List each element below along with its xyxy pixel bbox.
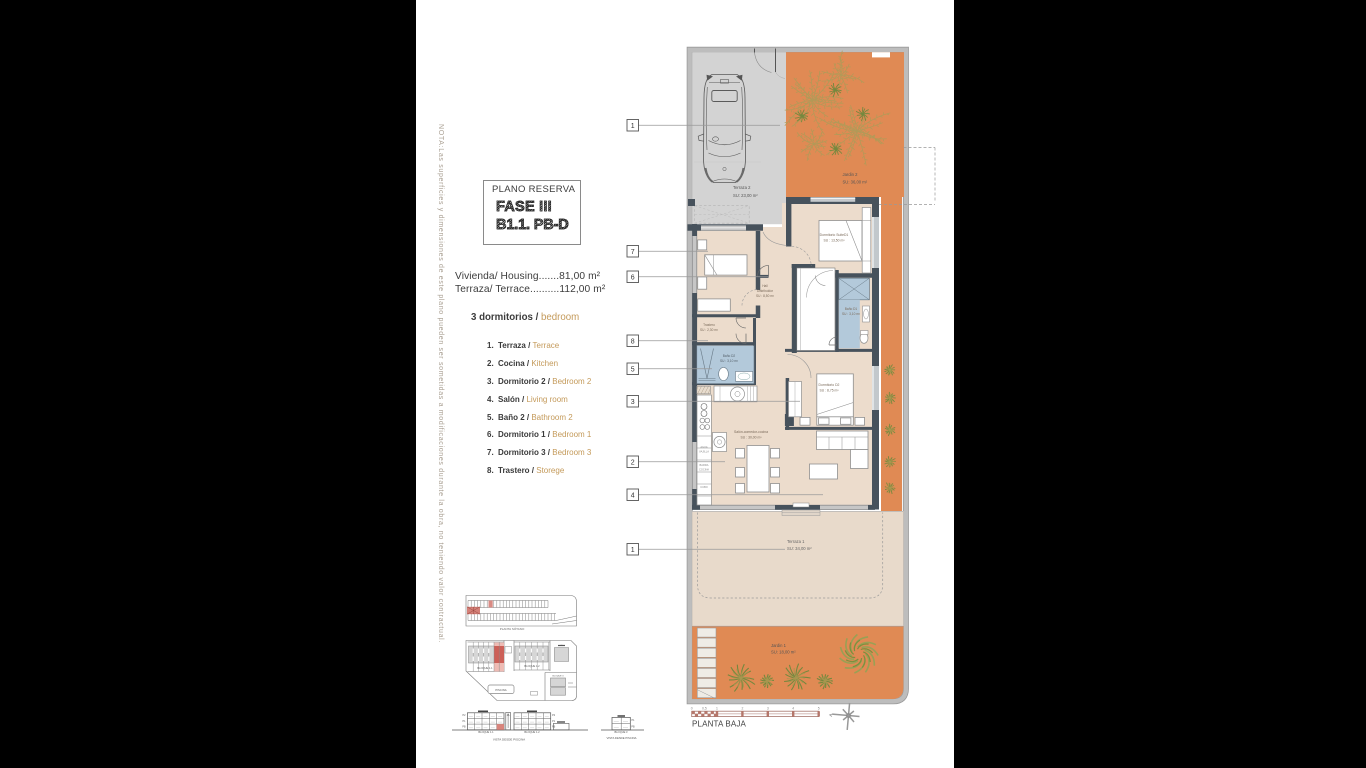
svg-text:7: 7 (631, 249, 635, 256)
svg-text:Jardin 2: Jardin 2 (843, 172, 859, 177)
svg-text:P1: P1 (632, 719, 636, 722)
svg-text:1: 1 (631, 123, 635, 130)
svg-text:SU: 23,00 m²: SU: 23,00 m² (733, 193, 758, 198)
svg-text:BLOQUE 3: BLOQUE 3 (615, 730, 629, 734)
svg-text:PLANTA SÓTANO: PLANTA SÓTANO (500, 626, 525, 631)
svg-text:Distribuidor: Distribuidor (757, 289, 774, 293)
svg-text:SU : 30,00 m²: SU : 30,00 m² (741, 436, 763, 440)
svg-text:2: 2 (631, 460, 635, 467)
svg-text:5: 5 (818, 706, 820, 710)
svg-text:Salón-comedor-cocina: Salón-comedor-cocina (734, 430, 768, 434)
svg-text:BLOQUE 1.1: BLOQUE 1.1 (477, 666, 493, 670)
svg-text:SU: 36,00 m²: SU: 36,00 m² (843, 180, 868, 185)
svg-text:PB: PB (552, 726, 556, 729)
svg-text:SU : 8,50 m²: SU : 8,50 m² (756, 294, 774, 298)
svg-text:Jardin 1: Jardin 1 (771, 643, 787, 648)
svg-text:BARRA: BARRA (700, 463, 709, 467)
svg-text:5: 5 (631, 367, 635, 374)
svg-text:BLOQUE 1.2: BLOQUE 1.2 (524, 730, 540, 734)
svg-text:P2: P2 (552, 714, 556, 717)
svg-text:P1: P1 (463, 720, 467, 723)
svg-text:BLOQUE 1.1: BLOQUE 1.1 (478, 730, 494, 734)
svg-text:3: 3 (631, 399, 635, 406)
svg-text:Dormitorio D2: Dormitorio D2 (819, 383, 840, 387)
svg-text:0,5: 0,5 (702, 706, 707, 710)
svg-text:4: 4 (792, 706, 794, 710)
svg-text:VAJILLA: VAJILLA (699, 450, 709, 454)
svg-text:Trastero: Trastero (703, 323, 715, 327)
svg-text:BLOQUE 1.2: BLOQUE 1.2 (524, 664, 540, 668)
svg-text:SU : 3,10 m²: SU : 3,10 m² (842, 312, 860, 316)
svg-text:COCINA: COCINA (699, 468, 709, 472)
svg-text:0: 0 (691, 706, 693, 710)
svg-text:1: 1 (716, 706, 718, 710)
svg-text:PLANTA BAJA: PLANTA BAJA (692, 720, 746, 729)
svg-text:Hall: Hall (762, 284, 768, 288)
svg-text:Dormitorio SuiteD1: Dormitorio SuiteD1 (820, 233, 849, 237)
svg-text:2: 2 (741, 706, 743, 710)
svg-text:SU : 3,10 m²: SU : 3,10 m² (720, 359, 738, 363)
svg-text:....: .... (560, 644, 563, 646)
svg-text:VISTA DESDE PISCINA: VISTA DESDE PISCINA (606, 736, 636, 740)
svg-text:BLOQUE 3: BLOQUE 3 (553, 676, 565, 678)
svg-text:1: 1 (631, 547, 635, 554)
svg-text:SU: 34,00 m²: SU: 34,00 m² (787, 546, 812, 551)
svg-text:Baño D1: Baño D1 (845, 307, 858, 311)
svg-text:P2: P2 (463, 714, 467, 717)
svg-text:3: 3 (767, 706, 769, 710)
svg-text:PISCINA: PISCINA (495, 688, 506, 692)
svg-text:Baño D2: Baño D2 (723, 354, 736, 358)
svg-text:Terraza 2: Terraza 2 (733, 185, 751, 190)
svg-text:P1: P1 (552, 720, 556, 723)
svg-text:8: 8 (631, 339, 635, 346)
svg-text:PB: PB (462, 726, 466, 729)
svg-text:SU : 2,30 m²: SU : 2,30 m² (700, 328, 718, 332)
svg-text:SU: 18,00 m²: SU: 18,00 m² (771, 650, 796, 655)
svg-text:CUBO: CUBO (700, 485, 708, 489)
svg-text:VISTA DESDE PISCINA: VISTA DESDE PISCINA (493, 738, 525, 742)
svg-text:Terraza 1: Terraza 1 (787, 539, 805, 544)
svg-text:4: 4 (631, 493, 635, 500)
svg-text:6: 6 (631, 275, 635, 282)
svg-text:AGUA: AGUA (700, 445, 708, 449)
svg-text:SU : 13,50 m²: SU : 13,50 m² (824, 239, 846, 243)
svg-text:SU : 8,75 m²: SU : 8,75 m² (819, 389, 839, 393)
svg-text:PB: PB (631, 725, 635, 728)
